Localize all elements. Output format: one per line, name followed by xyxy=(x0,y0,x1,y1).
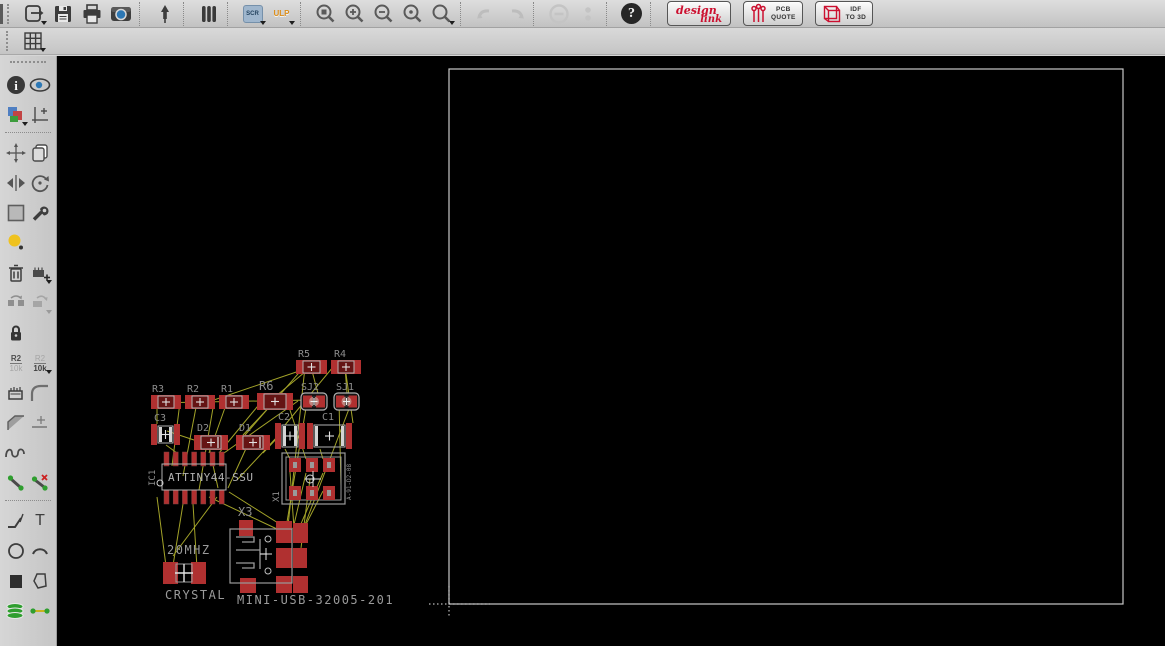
ripup-icon xyxy=(29,472,51,494)
pinswap-tool[interactable] xyxy=(4,290,28,316)
move-icon xyxy=(5,142,27,164)
svg-text:R2: R2 xyxy=(187,384,199,395)
grid-button[interactable] xyxy=(19,28,46,54)
miter-arc-icon xyxy=(29,382,51,404)
zoom-fit-button[interactable] xyxy=(312,1,339,27)
svg-text:R3: R3 xyxy=(152,384,164,395)
component-D2[interactable]: D2 xyxy=(194,423,228,450)
origin-mark xyxy=(429,586,490,617)
toolbar-separator xyxy=(139,2,146,26)
svg-text:SJ1: SJ1 xyxy=(336,382,354,393)
text-tool[interactable]: T xyxy=(28,508,52,534)
wire-tool[interactable] xyxy=(4,508,28,534)
toolbar-separator xyxy=(460,2,467,26)
value-icon: R210k xyxy=(33,354,46,373)
component-X1[interactable]: X1A-91-D2-08 xyxy=(272,453,353,504)
component-R4[interactable]: R4 xyxy=(331,349,361,374)
zoom-out-button[interactable] xyxy=(370,1,397,27)
route-tool[interactable] xyxy=(4,470,28,496)
toolbar-separator xyxy=(227,2,234,26)
go-dots-icon xyxy=(576,2,600,26)
route-icon xyxy=(5,472,27,494)
show-tool[interactable] xyxy=(28,72,52,98)
component-D1[interactable]: D1 xyxy=(236,423,270,450)
component-R2[interactable]: R2 xyxy=(185,384,215,409)
partial-icon xyxy=(0,4,3,24)
circle-icon xyxy=(5,540,27,562)
lock-tool[interactable] xyxy=(4,320,28,346)
svg-text:R1: R1 xyxy=(221,384,233,395)
mirror-icon xyxy=(5,172,27,194)
pcb-quote-label: PCBQUOTE xyxy=(771,6,796,21)
move-tool[interactable] xyxy=(4,140,28,166)
eye-icon xyxy=(28,74,52,96)
redo-icon xyxy=(502,2,528,26)
svg-text:20MHZ: 20MHZ xyxy=(167,543,211,557)
pin-icon xyxy=(155,2,175,26)
component-SJ2[interactable]: SJ2 xyxy=(301,382,327,410)
svg-text:X1: X1 xyxy=(272,491,282,502)
ulp-button[interactable]: ULP xyxy=(268,1,295,27)
rotate-icon xyxy=(29,172,51,194)
rotate-tool[interactable] xyxy=(28,170,52,196)
svg-text:C1: C1 xyxy=(322,412,334,423)
component-CRYSTAL[interactable]: 20MHZCRYSTAL xyxy=(163,543,226,602)
svg-text:CRYSTAL: CRYSTAL xyxy=(165,588,226,602)
svg-text:C3: C3 xyxy=(154,413,166,424)
name-tool[interactable]: R210k xyxy=(4,350,28,376)
info-icon: i xyxy=(5,74,27,96)
camera-icon xyxy=(108,2,134,26)
svg-text:MINI-USB-32005-201: MINI-USB-32005-201 xyxy=(237,593,394,607)
cut-tool[interactable] xyxy=(4,230,28,256)
toolbar-grid-row xyxy=(0,28,1165,55)
via-icon xyxy=(4,600,28,622)
print-icon xyxy=(80,2,104,26)
text-icon: T xyxy=(35,512,45,530)
tool-palette: i xyxy=(0,56,57,646)
mirror-tool[interactable] xyxy=(4,170,28,196)
meander-icon xyxy=(4,442,28,464)
svg-text:C2: C2 xyxy=(278,412,290,423)
signal-icon xyxy=(28,600,52,622)
ulp-icon: ULP xyxy=(274,9,290,18)
board-drawing[interactable]: R5R4R3R2R1R6SJ2SJ1C3D2D1C2C1ATTINY44-SSU… xyxy=(57,56,1165,617)
open-button[interactable] xyxy=(20,1,47,27)
design-link-logo: design link xyxy=(674,4,724,24)
copy-tool[interactable] xyxy=(28,140,52,166)
redo-button[interactable] xyxy=(501,1,528,27)
pinswap-icon xyxy=(5,292,27,314)
run-script-button[interactable] xyxy=(151,1,178,27)
split-tool[interactable] xyxy=(28,410,52,436)
svg-text:D1: D1 xyxy=(239,423,251,434)
toolbar-separator xyxy=(183,2,190,26)
toolbar-main: SCR ULP xyxy=(0,0,1165,28)
toolbar-separator xyxy=(533,2,540,26)
toolbar-grip[interactable] xyxy=(6,31,14,51)
zoom-select-icon xyxy=(401,2,425,26)
group-tool[interactable] xyxy=(4,200,28,226)
trash-icon xyxy=(5,262,27,284)
component-SJ1[interactable]: SJ1 xyxy=(334,382,359,410)
toolbar-separator xyxy=(300,2,307,26)
component-C3[interactable]: C3 xyxy=(151,413,180,445)
palette-separator xyxy=(5,500,51,504)
eagle-board-editor-window: SCR ULP xyxy=(0,0,1165,646)
polygon-icon xyxy=(29,570,51,592)
undo-icon xyxy=(473,2,499,26)
svg-text:R5: R5 xyxy=(298,349,310,360)
svg-text:R4: R4 xyxy=(334,349,346,360)
zoom-redraw-button[interactable] xyxy=(428,1,455,27)
lock-icon xyxy=(5,322,27,344)
arc-tool[interactable] xyxy=(28,538,52,564)
stop-icon xyxy=(547,2,571,26)
svg-text:ATTINY44-SSU: ATTINY44-SSU xyxy=(168,471,253,484)
print-button[interactable] xyxy=(78,1,105,27)
wrench-icon xyxy=(29,202,51,224)
wire-icon xyxy=(5,510,27,532)
component-C2[interactable]: C2 xyxy=(275,412,305,449)
zoom-fit-icon xyxy=(314,2,338,26)
idf-to-3d-button[interactable]: IDFTO 3D xyxy=(815,1,874,26)
split-icon xyxy=(29,412,51,434)
miter-tool[interactable] xyxy=(28,380,52,406)
palette-separator xyxy=(5,132,51,136)
add-tool[interactable] xyxy=(28,260,52,286)
export-image-button[interactable] xyxy=(107,1,134,27)
board-outline[interactable] xyxy=(449,69,1123,604)
polygon-tool[interactable] xyxy=(28,568,52,594)
signal-tool[interactable] xyxy=(28,598,52,624)
drawers-icon xyxy=(197,2,221,26)
component-R6[interactable]: R6 xyxy=(257,379,293,410)
mark-icon xyxy=(29,104,51,126)
undo-button[interactable] xyxy=(472,1,499,27)
copy-icon xyxy=(29,142,51,164)
cut-icon xyxy=(5,232,27,254)
design-link-button[interactable]: design link xyxy=(667,1,731,26)
save-icon xyxy=(51,2,75,26)
go-button[interactable] xyxy=(574,1,601,27)
value-tool[interactable]: R210k xyxy=(28,350,52,376)
pcb-quote-button[interactable]: PCBQUOTE xyxy=(743,1,803,26)
smash-icon xyxy=(5,382,27,404)
group-icon xyxy=(5,202,27,224)
save-button[interactable] xyxy=(49,1,76,27)
zoom-select-button[interactable] xyxy=(399,1,426,27)
smash-tool[interactable] xyxy=(4,380,28,406)
library-button[interactable] xyxy=(195,1,222,27)
help-button[interactable]: ? xyxy=(618,1,645,27)
svg-text:A-91-D2-08: A-91-D2-08 xyxy=(346,463,353,500)
board-canvas[interactable]: R5R4R3R2R1R6SJ2SJ1C3D2D1C2C1ATTINY44-SSU… xyxy=(57,56,1165,646)
name-icon: R210k xyxy=(10,354,23,373)
toolbar-separator xyxy=(650,2,657,26)
zoom-out-icon xyxy=(372,2,396,26)
meander-tool[interactable] xyxy=(4,440,28,466)
display-layers-tool[interactable] xyxy=(4,102,28,128)
zoom-in-button[interactable] xyxy=(341,1,368,27)
svg-text:IC1: IC1 xyxy=(148,470,158,486)
change-tool[interactable] xyxy=(28,200,52,226)
ripup-tool[interactable] xyxy=(28,470,52,496)
svg-text:SJ2: SJ2 xyxy=(301,382,319,393)
svg-text:D2: D2 xyxy=(197,423,209,434)
toolbar-grip[interactable] xyxy=(7,4,15,24)
toolbar-separator xyxy=(606,2,613,26)
component-R1[interactable]: R1 xyxy=(219,384,249,409)
palette-grip[interactable] xyxy=(10,61,46,69)
replace-tool[interactable] xyxy=(28,290,52,316)
arc-icon xyxy=(29,540,51,562)
mark-tool[interactable] xyxy=(28,102,52,128)
component-X3[interactable]: X3 MINI-USB-32005-201 xyxy=(230,505,394,607)
idf-3d-icon xyxy=(822,4,842,24)
component-R3[interactable]: R3 xyxy=(151,384,181,409)
component-R5[interactable]: R5 xyxy=(296,349,327,374)
delete-tool[interactable] xyxy=(4,260,28,286)
via-tool[interactable] xyxy=(4,598,28,624)
miter-line-tool[interactable] xyxy=(4,410,28,436)
component-IC1[interactable]: ATTINY44-SSUIC1 xyxy=(148,452,253,504)
info-tool[interactable]: i xyxy=(4,72,28,98)
stop-button[interactable] xyxy=(545,1,572,27)
rect-tool[interactable] xyxy=(4,568,28,594)
svg-text:i: i xyxy=(14,78,18,93)
scr-button[interactable]: SCR xyxy=(239,1,266,27)
circle-tool[interactable] xyxy=(4,538,28,564)
idf-3d-label: IDFTO 3D xyxy=(846,6,867,21)
pcb-quote-icon xyxy=(750,3,767,24)
rect-icon xyxy=(5,570,27,592)
miter-line-icon xyxy=(5,412,27,434)
zoom-in-icon xyxy=(343,2,367,26)
help-icon: ? xyxy=(621,3,642,24)
svg-text:X3: X3 xyxy=(238,505,252,519)
svg-text:R6: R6 xyxy=(259,379,273,393)
